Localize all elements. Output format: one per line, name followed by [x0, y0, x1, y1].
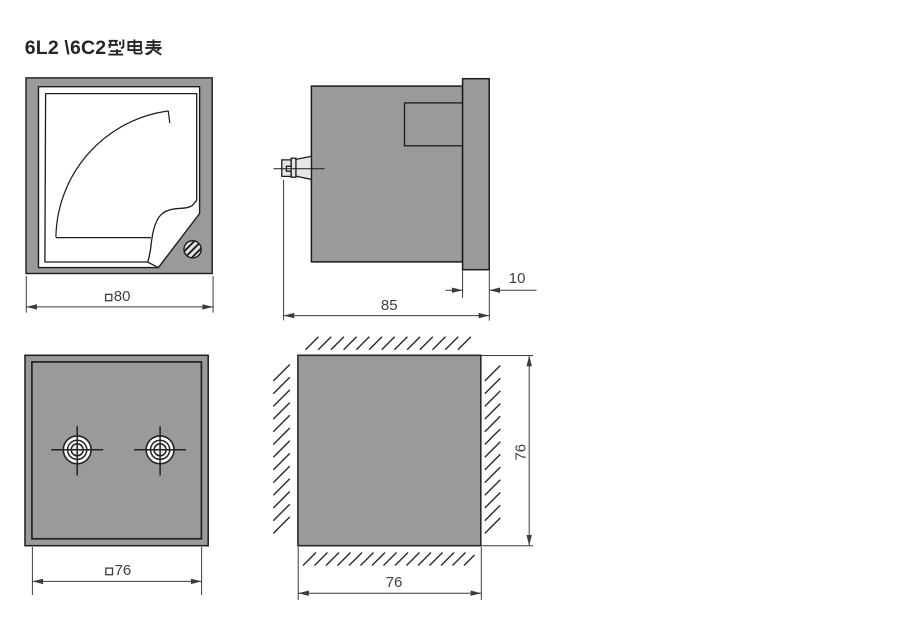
svg-text:10: 10 [509, 270, 526, 287]
svg-text:76: 76 [513, 444, 530, 461]
svg-text:80: 80 [114, 288, 131, 305]
svg-text:76: 76 [115, 562, 132, 579]
svg-text:85: 85 [381, 297, 398, 314]
svg-text:76: 76 [386, 574, 403, 591]
svg-text:6L2 \6C2: 6L2 \6C2 [25, 37, 106, 59]
